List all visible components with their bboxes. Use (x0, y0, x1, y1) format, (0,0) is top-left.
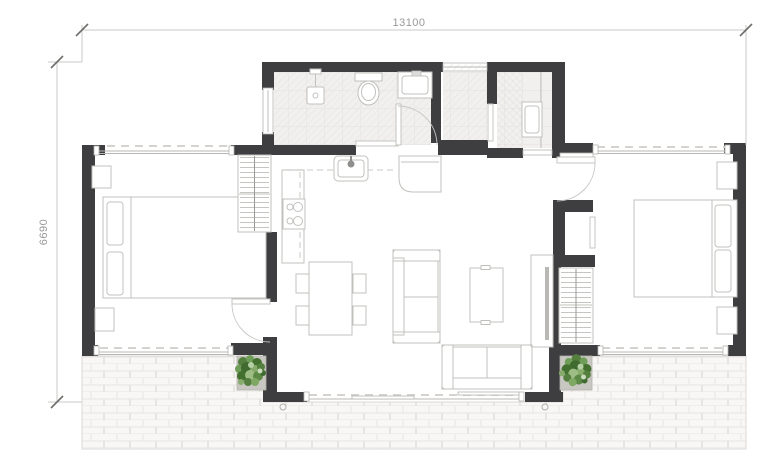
bedroom-left-furniture (92, 155, 271, 331)
bedroom-right-furniture (559, 162, 737, 343)
chair-icon (353, 306, 366, 325)
washing-machine-icon (522, 102, 542, 137)
wardrobe-icon (238, 155, 271, 232)
nightstand-icon (717, 162, 737, 189)
washbasin-icon (398, 71, 432, 98)
nightstand-icon (92, 166, 111, 188)
shower-icon (307, 69, 324, 104)
nightstand-icon (95, 308, 114, 331)
chair-icon (353, 274, 366, 293)
coffee-table-icon (470, 266, 503, 325)
sofa-icon (442, 345, 532, 389)
door-swing-icon (557, 153, 595, 201)
terrace (82, 356, 746, 449)
chair-icon (296, 274, 309, 293)
pillow-icon (107, 202, 123, 245)
dimension-left: 6690 (38, 56, 82, 408)
double-bed-icon (634, 200, 737, 297)
planter-icon (235, 355, 266, 390)
pillow-icon (715, 250, 731, 292)
living-dining-furniture (296, 250, 553, 389)
tv-console-icon (531, 255, 553, 347)
door-swing-icon (488, 104, 493, 141)
downspout-icon (280, 404, 286, 410)
kitchen (282, 156, 441, 263)
fridge-icon (399, 156, 441, 192)
pillow-icon (107, 252, 123, 295)
cooktop-icon (283, 199, 305, 229)
door-swing-icon (590, 217, 595, 248)
dining-table-icon (309, 262, 352, 335)
dimension-width-label: 13100 (392, 17, 425, 29)
dimension-height-label: 6690 (38, 219, 50, 245)
nightstand-icon (717, 307, 737, 334)
planters (235, 349, 598, 393)
floor-plan-canvas: 13100 6690 (0, 0, 768, 464)
chair-icon (296, 306, 309, 325)
window-icon (263, 88, 273, 134)
wardrobe-icon (559, 268, 593, 343)
pillow-icon (715, 205, 731, 247)
sofa-icon (393, 250, 440, 343)
downspout-icon (542, 404, 548, 410)
door-swing-icon (232, 299, 270, 342)
kitchen-sink-icon (334, 156, 368, 181)
floor-plan-page: 13100 6690 (0, 0, 768, 464)
window-icon (443, 63, 487, 71)
